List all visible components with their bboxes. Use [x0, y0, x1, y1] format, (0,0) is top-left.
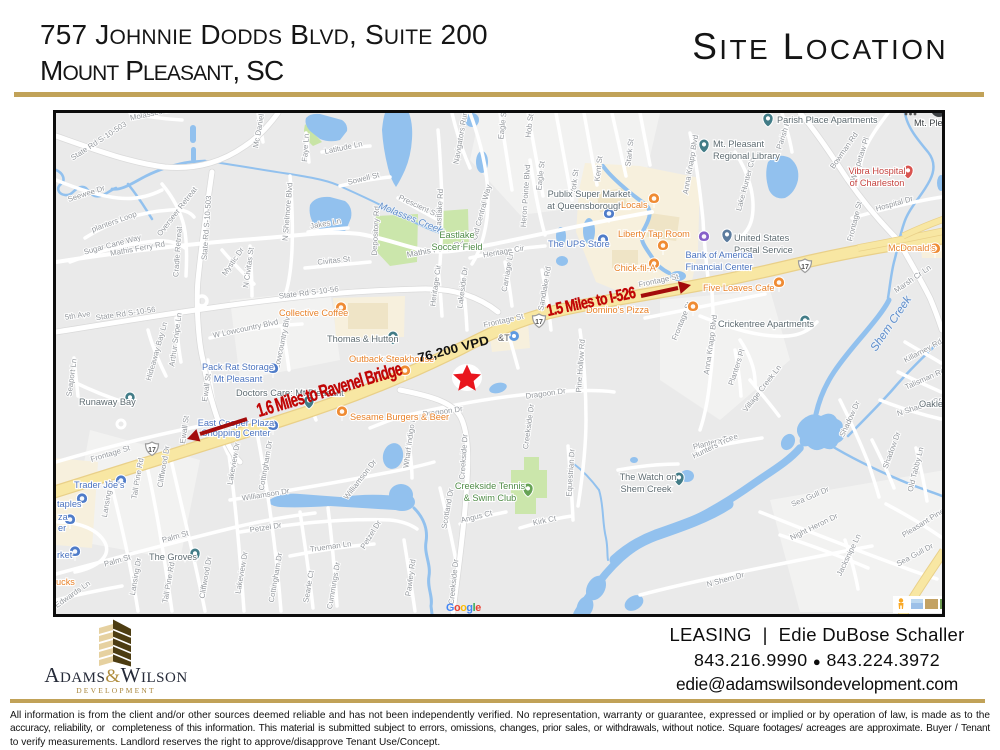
svg-text:Shem Creek: Shem Creek [620, 484, 671, 494]
svg-text:The Groves: The Groves [149, 552, 197, 562]
svg-text:Parish Place Apartments: Parish Place Apartments [777, 115, 878, 125]
svg-text:& Swim Club: & Swim Club [464, 493, 517, 503]
svg-text:Eastlake: Eastlake [439, 230, 474, 240]
svg-text:The Watch on: The Watch on [620, 472, 677, 482]
svg-text:of Charleston: of Charleston [850, 178, 905, 188]
svg-text:Sesame Burgers & Beer: Sesame Burgers & Beer [350, 412, 449, 422]
svg-text:Creekside Tennis: Creekside Tennis [455, 481, 526, 491]
svg-text:ucks: ucks [56, 577, 75, 587]
svg-text:The UPS Store: The UPS Store [548, 239, 610, 249]
svg-text:Soccer Field: Soccer Field [431, 242, 482, 252]
svg-text:Oakleaf: Oakleaf [919, 399, 942, 409]
svg-text:Trader Joe's: Trader Joe's [74, 480, 125, 490]
svg-text:Bank of America: Bank of America [686, 250, 754, 260]
svg-text:Vibra Hospital: Vibra Hospital [848, 166, 905, 176]
svg-text:Runaway Bay: Runaway Bay [79, 397, 136, 407]
svg-text:&T: &T [498, 333, 510, 343]
svg-text:Mt Pleasant: Mt Pleasant [214, 374, 263, 384]
svg-text:rket: rket [57, 550, 73, 560]
svg-text:Thomas & Hutton: Thomas & Hutton [327, 334, 399, 344]
svg-text:Locals: Locals [621, 200, 648, 210]
svg-text:Five Loaves Cafe: Five Loaves Cafe [703, 283, 775, 293]
svg-text:za: za [58, 512, 69, 522]
svg-text:Pack Rat Storage: Pack Rat Storage [202, 362, 274, 372]
svg-text:Crickentree Apartments: Crickentree Apartments [718, 319, 814, 329]
svg-text:Liberty Tap Room: Liberty Tap Room [618, 229, 690, 239]
svg-text:er: er [58, 523, 66, 533]
svg-text:Regional Library: Regional Library [713, 151, 780, 161]
svg-text:Financial Center: Financial Center [686, 262, 753, 272]
svg-text:taples: taples [57, 499, 82, 509]
svg-text:Chick-fil-A: Chick-fil-A [614, 263, 657, 273]
svg-text:McDonald's: McDonald's [888, 243, 936, 253]
svg-text:Mt. Pleasant: Mt. Pleasant [713, 139, 765, 149]
svg-text:Mt. Plea: Mt. Plea [914, 118, 942, 128]
svg-text:at Queensborough...: at Queensborough... [547, 201, 631, 211]
svg-text:Publix Super Market: Publix Super Market [548, 189, 631, 199]
svg-text:United States: United States [734, 233, 790, 243]
svg-text:Google: Google [446, 602, 481, 614]
svg-text:Collective Coffee: Collective Coffee [279, 308, 348, 318]
